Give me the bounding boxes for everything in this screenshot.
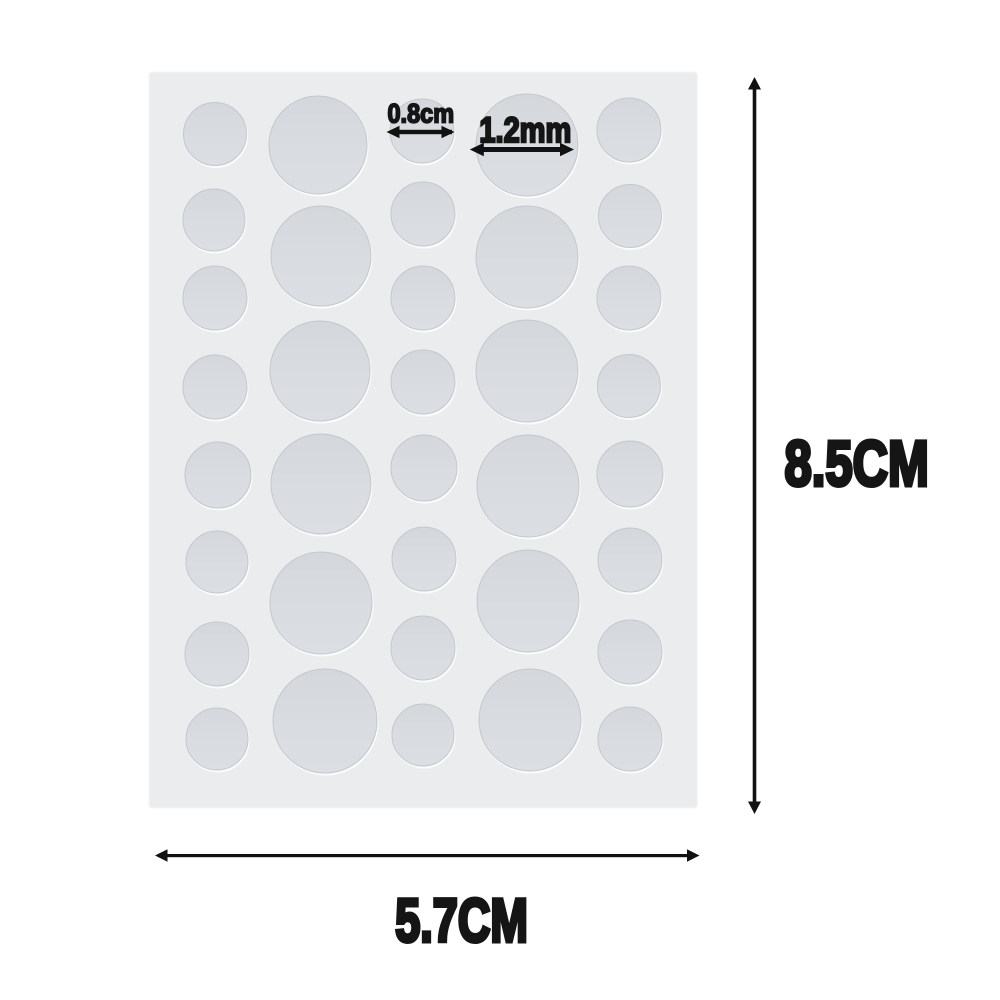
svg-text:0.8cm: 0.8cm xyxy=(388,99,455,129)
svg-text:1.2mm: 1.2mm xyxy=(479,111,571,150)
svg-text:5.7CM: 5.7CM xyxy=(395,887,528,955)
svg-text:8.5CM: 8.5CM xyxy=(785,428,929,500)
